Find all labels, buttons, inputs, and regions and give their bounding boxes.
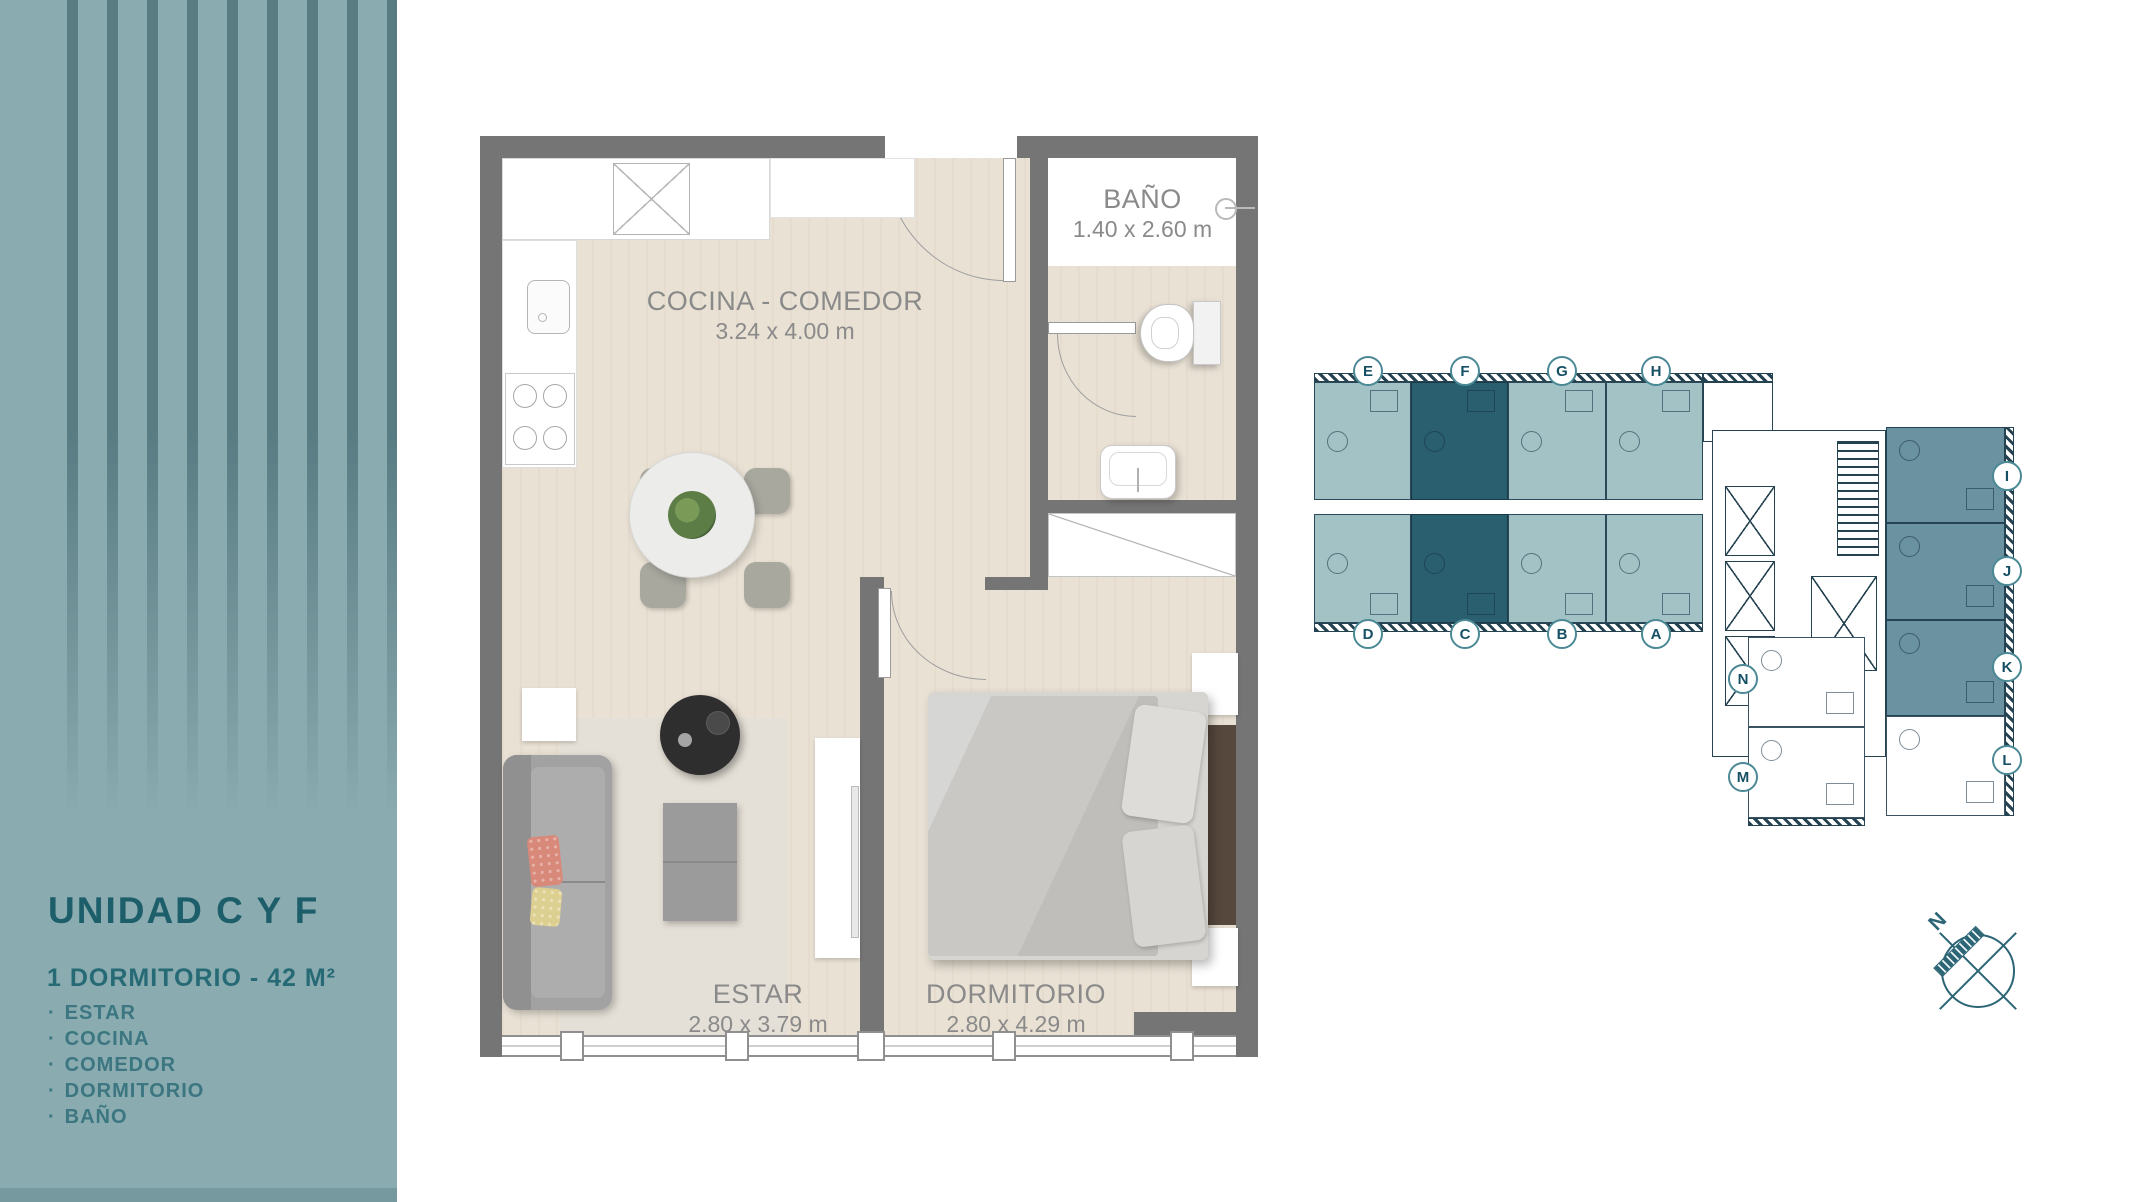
sofa-backrest <box>503 755 531 1010</box>
unit-badge-d: D <box>1353 619 1383 649</box>
unit-badge-m: M <box>1728 762 1758 792</box>
pillow <box>1121 824 1207 948</box>
room-dims: 2.80 x 3.79 m <box>658 1011 858 1038</box>
wall-left <box>480 136 502 1057</box>
floorplan: COCINA - COMEDOR 3.24 x 4.00 m BAÑO 1.40… <box>480 136 1258 1057</box>
keyplan-unit-j <box>1886 523 2005 620</box>
keyplan-unit-i <box>1886 427 2005 523</box>
bullet: · <box>48 1028 56 1050</box>
wall-top-right <box>1017 136 1258 158</box>
room-name: ESTAR <box>658 979 858 1011</box>
feature-item: ·COMEDOR <box>48 1052 204 1078</box>
keyplan-unit-e <box>1314 382 1411 500</box>
sidebar-bottom-bar <box>0 1188 397 1202</box>
unit-badge-n: N <box>1728 664 1758 694</box>
keyplan-unit-c <box>1411 514 1508 623</box>
feature-item: ·COCINA <box>48 1026 204 1052</box>
wall-top-left <box>480 136 885 158</box>
bullet: · <box>48 1080 56 1102</box>
window-mullion <box>1170 1031 1194 1061</box>
north-label: N <box>1920 904 1955 939</box>
bed <box>928 692 1208 960</box>
unit-badge-j: J <box>1992 556 2022 586</box>
wall-bedroom-door-stub <box>985 577 1048 590</box>
round-side-table <box>660 695 740 775</box>
compass: N <box>1925 912 2035 1022</box>
pillow-yellow <box>529 887 562 927</box>
side-table <box>522 688 576 741</box>
toilet-bowl <box>1140 304 1194 362</box>
feature-label: COMEDOR <box>65 1054 176 1076</box>
keyplan-unit-k <box>1886 620 2005 716</box>
sidebar: UNIDAD C Y F 1 DORMITORIO - 42 M² ·ESTAR… <box>0 0 397 1202</box>
unit-badge-a: A <box>1641 619 1671 649</box>
feature-label: BAÑO <box>65 1106 128 1128</box>
keyplan-unit-h <box>1606 382 1703 500</box>
keyplan-unit-m <box>1748 727 1865 818</box>
room-dims: 2.80 x 4.29 m <box>906 1011 1126 1038</box>
window-mullion <box>560 1031 584 1061</box>
unit-badge-c: C <box>1450 619 1480 649</box>
toilet-tank <box>1193 301 1221 365</box>
wall-below-basin <box>1040 500 1236 513</box>
sofa <box>503 755 612 1010</box>
toilet-seat <box>1151 317 1179 349</box>
stairs <box>1837 441 1879 556</box>
bath-sliding-door <box>1048 322 1136 334</box>
keyplan-wall-hatch-nm <box>1748 818 1865 826</box>
burner <box>513 426 537 450</box>
bullet: · <box>48 1002 56 1024</box>
elevator-shaft <box>1725 486 1775 556</box>
bedroom-door-leaf <box>878 588 891 678</box>
room-dims: 1.40 x 2.60 m <box>1050 216 1235 243</box>
keyplan-vestibule-hatch <box>1703 373 1773 382</box>
room-label-dormitorio: DORMITORIO 2.80 x 4.29 m <box>906 979 1126 1038</box>
bullet: · <box>48 1054 56 1076</box>
unit-badge-g: G <box>1547 356 1577 386</box>
unit-badge-i: I <box>1992 461 2022 491</box>
unit-subtitle: 1 DORMITORIO - 42 M² <box>47 964 336 993</box>
feature-label: COCINA <box>65 1028 150 1050</box>
burner <box>513 384 537 408</box>
kitchen-counter-top-right <box>770 158 915 218</box>
closet <box>1048 513 1236 577</box>
feature-item: ·BAÑO <box>48 1104 204 1130</box>
entry-door-leaf <box>1003 158 1016 282</box>
room-label-cocina-comedor: COCINA - COMEDOR 3.24 x 4.00 m <box>635 286 935 345</box>
keyplan-unit-b <box>1508 514 1606 623</box>
page: UNIDAD C Y F 1 DORMITORIO - 42 M² ·ESTAR… <box>0 0 2138 1202</box>
pillow-coral <box>526 834 563 887</box>
unit-badge-h: H <box>1641 356 1671 386</box>
burner <box>543 384 567 408</box>
keyplan: E F G H D C B A I J K L N M <box>1300 345 2045 845</box>
keyplan-unit-a <box>1606 514 1703 623</box>
plant <box>668 491 716 539</box>
wall-hall-bath <box>1030 158 1048 590</box>
wall-right <box>1236 136 1258 1057</box>
elevator-shaft <box>1725 561 1775 631</box>
room-name: COCINA - COMEDOR <box>635 286 935 318</box>
decorative-stripes <box>38 0 397 830</box>
keyplan-unit-n <box>1748 637 1865 727</box>
room-label-estar: ESTAR 2.80 x 3.79 m <box>658 979 858 1038</box>
bed-headboard <box>1208 725 1236 925</box>
unit-badge-l: L <box>1992 745 2022 775</box>
kitchen-sink <box>527 280 570 334</box>
coffee-table-seam <box>663 861 737 863</box>
burner <box>543 426 567 450</box>
pillow <box>1121 704 1208 825</box>
basin-faucet <box>1137 468 1139 492</box>
duvet <box>928 696 1158 956</box>
room-name: DORMITORIO <box>906 979 1126 1011</box>
cooktop <box>505 373 575 465</box>
feature-label: DORMITORIO <box>65 1080 205 1102</box>
window-mullion <box>857 1031 885 1061</box>
feature-label: ESTAR <box>65 1002 136 1024</box>
room-dims: 3.24 x 4.00 m <box>635 318 935 345</box>
bullet: · <box>48 1106 56 1128</box>
feature-list: ·ESTAR ·COCINA ·COMEDOR ·DORMITORIO ·BAÑ… <box>48 1000 204 1130</box>
unit-badge-k: K <box>1992 652 2022 682</box>
washbasin <box>1100 445 1176 499</box>
feature-item: ·ESTAR <box>48 1000 204 1026</box>
table-tray <box>706 711 730 735</box>
keyplan-unit-f <box>1411 382 1508 500</box>
sink-drain <box>538 313 547 322</box>
dining-chair <box>744 562 790 608</box>
fridge <box>613 163 690 235</box>
keyplan-unit-g <box>1508 382 1606 500</box>
keyplan-unit-d <box>1314 514 1411 623</box>
room-name: BAÑO <box>1050 184 1235 216</box>
unit-badge-f: F <box>1450 356 1480 386</box>
room-label-bano: BAÑO 1.40 x 2.60 m <box>1050 184 1235 243</box>
feature-item: ·DORMITORIO <box>48 1078 204 1104</box>
page-title: UNIDAD C Y F <box>48 890 319 932</box>
keyplan-unit-l <box>1886 716 2005 816</box>
unit-badge-b: B <box>1547 619 1577 649</box>
unit-badge-e: E <box>1353 356 1383 386</box>
coffee-table <box>663 803 737 921</box>
tv <box>851 786 859 938</box>
table-decor <box>678 733 692 747</box>
